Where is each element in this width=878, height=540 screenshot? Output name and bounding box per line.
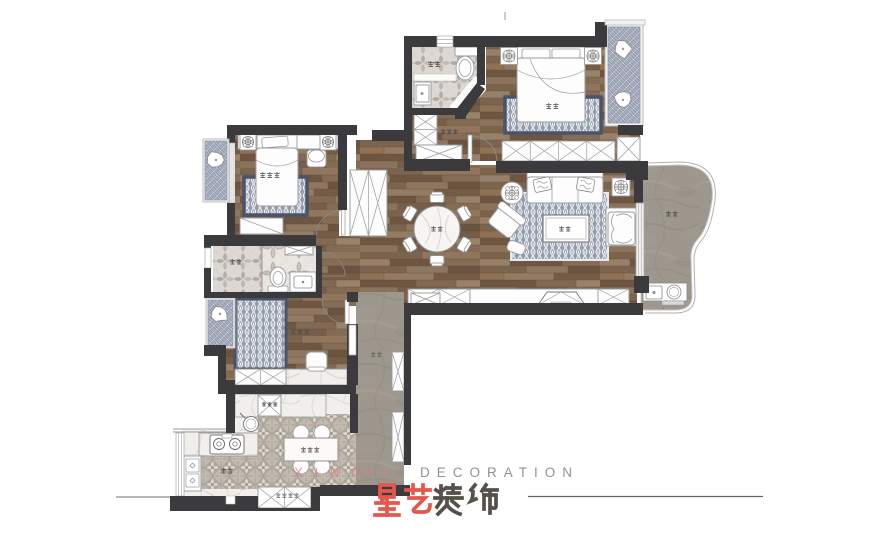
svg-text:XING: XING bbox=[294, 465, 373, 480]
svg-text:DECORATION: DECORATION bbox=[420, 465, 579, 480]
svg-text:YI: YI bbox=[364, 465, 400, 480]
